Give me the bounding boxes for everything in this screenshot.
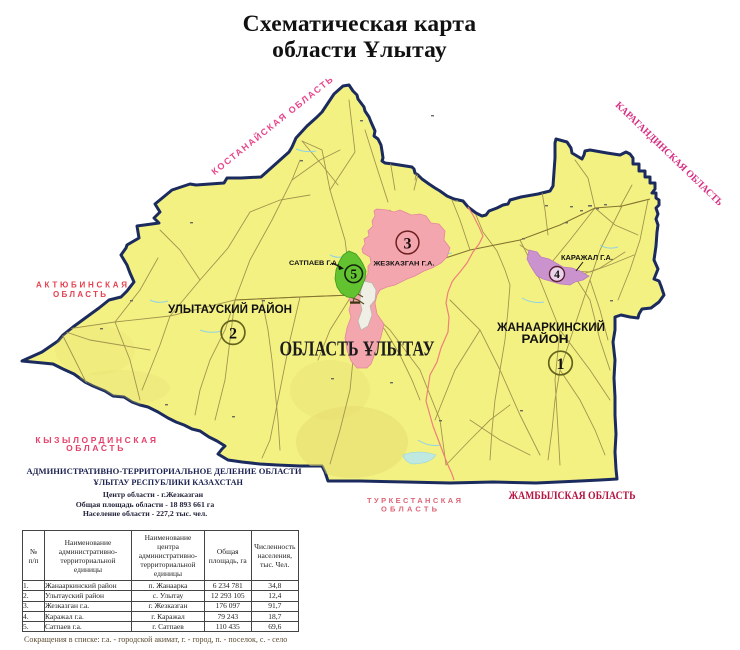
svg-text:ОБЛАСТЬ ҰЛЫТАУ: ОБЛАСТЬ ҰЛЫТАУ	[280, 337, 435, 361]
svg-text:РАЙОН: РАЙОН	[522, 333, 569, 346]
svg-text:САТПАЕВ Г.А.: САТПАЕВ Г.А.	[289, 260, 339, 267]
svg-text:5: 5	[350, 267, 357, 282]
svg-text:2: 2	[229, 325, 237, 342]
svg-text:КАРАЖАЛ Г.А.: КАРАЖАЛ Г.А.	[561, 255, 613, 262]
svg-text:1: 1	[557, 356, 565, 373]
svg-text:ОБЛАСТЬ: ОБЛАСТЬ	[66, 443, 126, 453]
svg-text:УЛЫТАУСКИЙ РАЙОН: УЛЫТАУСКИЙ РАЙОН	[168, 303, 292, 316]
svg-text:АКТЮБИНСКАЯ: АКТЮБИНСКАЯ	[36, 281, 127, 290]
svg-text:ОБЛАСТЬ: ОБЛАСТЬ	[381, 505, 438, 514]
svg-text:3: 3	[404, 235, 412, 252]
svg-text:ЖАНААРКИНСКИЙ: ЖАНААРКИНСКИЙ	[496, 321, 605, 334]
svg-text:4: 4	[554, 269, 560, 281]
svg-text:ОБЛАСТЬ: ОБЛАСТЬ	[53, 290, 106, 299]
svg-text:ЖЕЗКАЗГАН Г.А.: ЖЕЗКАЗГАН Г.А.	[372, 261, 434, 268]
svg-text:ЖАМБЫЛСКАЯ ОБЛАСТЬ: ЖАМБЫЛСКАЯ ОБЛАСТЬ	[509, 488, 636, 502]
